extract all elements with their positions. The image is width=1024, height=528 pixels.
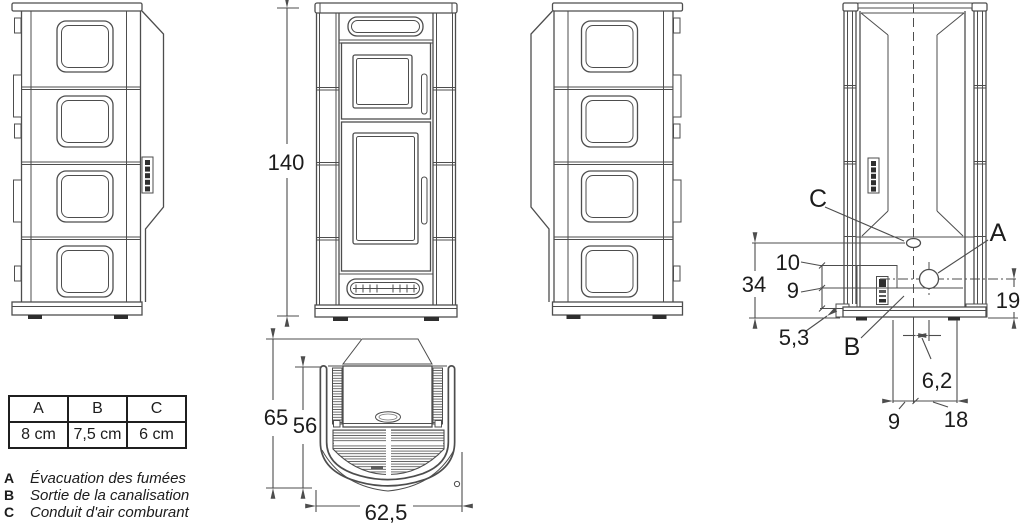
dimension-height-140: 140 (268, 8, 305, 316)
top-vent (348, 17, 423, 36)
legend-key-a: A (4, 470, 30, 486)
front-view: 140 (268, 3, 457, 321)
dim-label-18: 18 (944, 407, 968, 432)
control-panel-icon (142, 157, 153, 193)
control-panel-icon (868, 158, 879, 193)
side-view-right (531, 3, 683, 319)
side-grille-right (433, 368, 443, 424)
table-value-row: 8 cm 7,5 cm 6 cm (9, 422, 186, 448)
lower-door (342, 122, 431, 271)
dim-label-5-3: 5,3 (779, 325, 810, 350)
top-view: 65 56 62,5 (264, 339, 462, 525)
port-size-table: A B C 8 cm 7,5 cm 6 cm (8, 395, 187, 449)
legend-item-b: B Sortie de la canalisation (4, 487, 234, 504)
lower-door-handle (422, 177, 428, 224)
dim-label-19: 19 (996, 288, 1020, 313)
table-header-a: A (9, 396, 68, 422)
table-header-row: A B C (9, 396, 186, 422)
legend: A Évacuation des fumées B Sortie de la c… (4, 470, 234, 521)
legend-key-b: B (4, 487, 30, 503)
dim-label-140: 140 (268, 150, 305, 175)
legend-item-c: C Conduit d'air comburant (4, 504, 234, 521)
rear-view: 34 10 9 5,3 19 (742, 3, 1020, 434)
legend-key-c: C (4, 504, 30, 520)
dim-label-9-bottom: 9 (888, 409, 900, 434)
table-header-c: C (127, 396, 186, 422)
caster-knob (454, 481, 459, 486)
dim-label-34: 34 (742, 272, 766, 297)
legend-text-c: Conduit d'air comburant (30, 504, 189, 521)
port-label-a: A (990, 219, 1007, 247)
rating-plate (877, 277, 889, 305)
upper-door-handle (422, 74, 428, 114)
upper-door (342, 43, 431, 119)
legend-item-a: A Évacuation des fumées (4, 470, 234, 487)
side-grille-left (333, 368, 343, 424)
legend-text-a: Évacuation des fumées (30, 470, 186, 487)
top-plate (343, 366, 432, 427)
table-value-a: 8 cm (9, 422, 68, 448)
stove-technical-drawing: 140 (0, 0, 1024, 528)
port-c-air-inlet (907, 239, 921, 248)
dim-label-9-side: 9 (787, 278, 799, 303)
legend-text-b: Sortie de la canalisation (30, 487, 189, 504)
table-value-c: 6 cm (127, 422, 186, 448)
port-label-c: C (809, 185, 827, 213)
port-a-flue-outlet (920, 270, 939, 289)
side-view-left (12, 3, 164, 319)
table-header-b: B (68, 396, 127, 422)
dim-label-65: 65 (264, 405, 288, 430)
dim-label-62-5: 62,5 (365, 500, 408, 525)
table-value-b: 7,5 cm (68, 422, 127, 448)
port-label-b: B (844, 333, 861, 361)
dim-label-56: 56 (293, 413, 317, 438)
dim-label-6-2: 6,2 (922, 368, 953, 393)
bottom-grille (347, 279, 423, 298)
dim-label-10: 10 (776, 250, 800, 275)
